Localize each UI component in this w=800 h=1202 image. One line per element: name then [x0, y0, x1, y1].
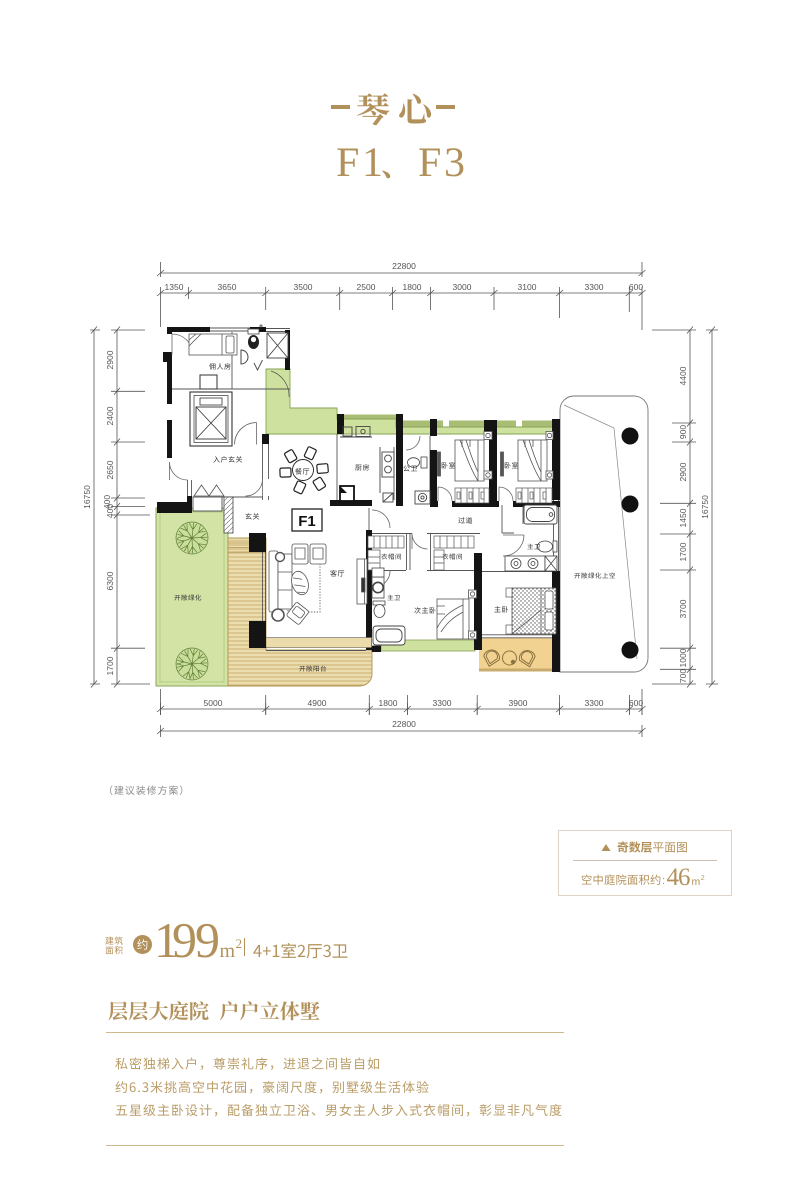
- svg-text:3100: 3100: [518, 282, 537, 292]
- svg-text:3000: 3000: [453, 282, 472, 292]
- svg-text:900: 900: [678, 425, 688, 439]
- svg-text:3900: 3900: [509, 698, 528, 708]
- svg-text:2900: 2900: [105, 350, 115, 369]
- svg-text:5000: 5000: [204, 698, 223, 708]
- svg-text:1800: 1800: [403, 282, 422, 292]
- svg-text:1350: 1350: [165, 282, 184, 292]
- svg-text:1800: 1800: [379, 698, 398, 708]
- svg-text:3650: 3650: [218, 282, 237, 292]
- svg-text:2650: 2650: [105, 460, 115, 479]
- svg-text:4900: 4900: [308, 698, 327, 708]
- svg-text:22800: 22800: [392, 261, 416, 271]
- svg-text:22800: 22800: [392, 719, 416, 729]
- svg-text:1000: 1000: [678, 648, 688, 667]
- svg-text:F1: F1: [298, 513, 316, 530]
- svg-text:3300: 3300: [433, 698, 452, 708]
- svg-text:2400: 2400: [105, 406, 115, 425]
- svg-text:2900: 2900: [678, 462, 688, 481]
- svg-text:1450: 1450: [678, 508, 688, 527]
- svg-text:3700: 3700: [678, 599, 688, 618]
- svg-text:1700: 1700: [678, 542, 688, 561]
- svg-text:4400: 4400: [678, 366, 688, 385]
- svg-text:3300: 3300: [585, 282, 604, 292]
- svg-text:3500: 3500: [294, 282, 313, 292]
- svg-text:400: 400: [105, 504, 115, 518]
- svg-text:2500: 2500: [357, 282, 376, 292]
- svg-text:600: 600: [629, 698, 643, 708]
- svg-text:16750: 16750: [700, 495, 710, 519]
- svg-text:3300: 3300: [585, 698, 604, 708]
- svg-text:16750: 16750: [82, 485, 92, 509]
- svg-text:700: 700: [678, 669, 688, 683]
- svg-text:6300: 6300: [105, 571, 115, 590]
- svg-text:600: 600: [629, 282, 643, 292]
- svg-text:1700: 1700: [105, 656, 115, 675]
